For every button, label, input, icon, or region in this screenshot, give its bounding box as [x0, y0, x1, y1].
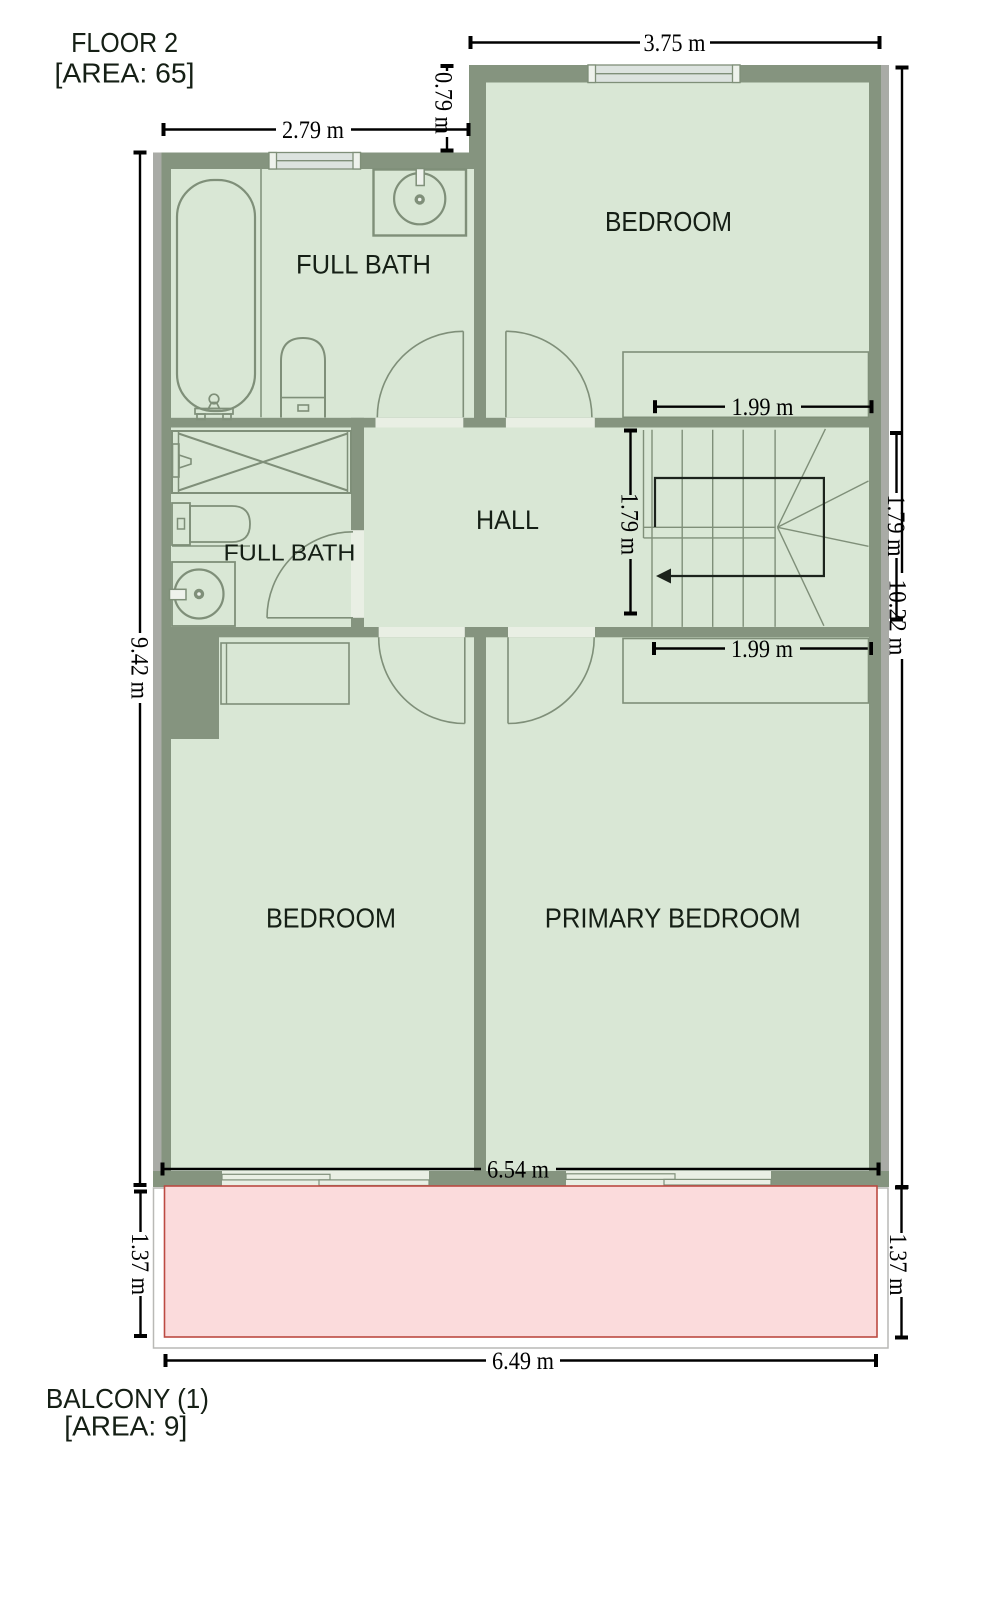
svg-text:[AREA: 65]: [AREA: 65]: [55, 58, 195, 89]
svg-text:FULL BATH: FULL BATH: [296, 250, 431, 280]
svg-text:0.79 m: 0.79 m: [430, 72, 457, 134]
svg-text:1.37 m: 1.37 m: [126, 1233, 153, 1295]
svg-text:FULL BATH: FULL BATH: [224, 540, 356, 566]
svg-text:6.54 m: 6.54 m: [487, 1157, 549, 1184]
svg-text:6.49 m: 6.49 m: [492, 1348, 554, 1375]
svg-text:BEDROOM: BEDROOM: [605, 206, 732, 237]
svg-text:PRIMARY BEDROOM: PRIMARY BEDROOM: [545, 903, 801, 934]
svg-text:HALL: HALL: [476, 505, 539, 535]
svg-text:1.79 m: 1.79 m: [882, 495, 909, 557]
svg-text:BALCONY (1): BALCONY (1): [46, 1383, 209, 1414]
svg-text:[AREA: 9]: [AREA: 9]: [64, 1411, 187, 1442]
svg-text:1.37 m: 1.37 m: [884, 1234, 911, 1296]
svg-text:1.79 m: 1.79 m: [616, 493, 643, 555]
svg-text:BEDROOM: BEDROOM: [266, 903, 396, 934]
svg-text:9.42 m: 9.42 m: [126, 637, 153, 699]
svg-text:3.75 m: 3.75 m: [644, 30, 706, 57]
svg-text:1.99 m: 1.99 m: [732, 394, 794, 421]
svg-text:2.79 m: 2.79 m: [282, 117, 344, 144]
svg-text:FLOOR 2: FLOOR 2: [71, 27, 178, 58]
svg-text:1.99 m: 1.99 m: [731, 636, 793, 663]
